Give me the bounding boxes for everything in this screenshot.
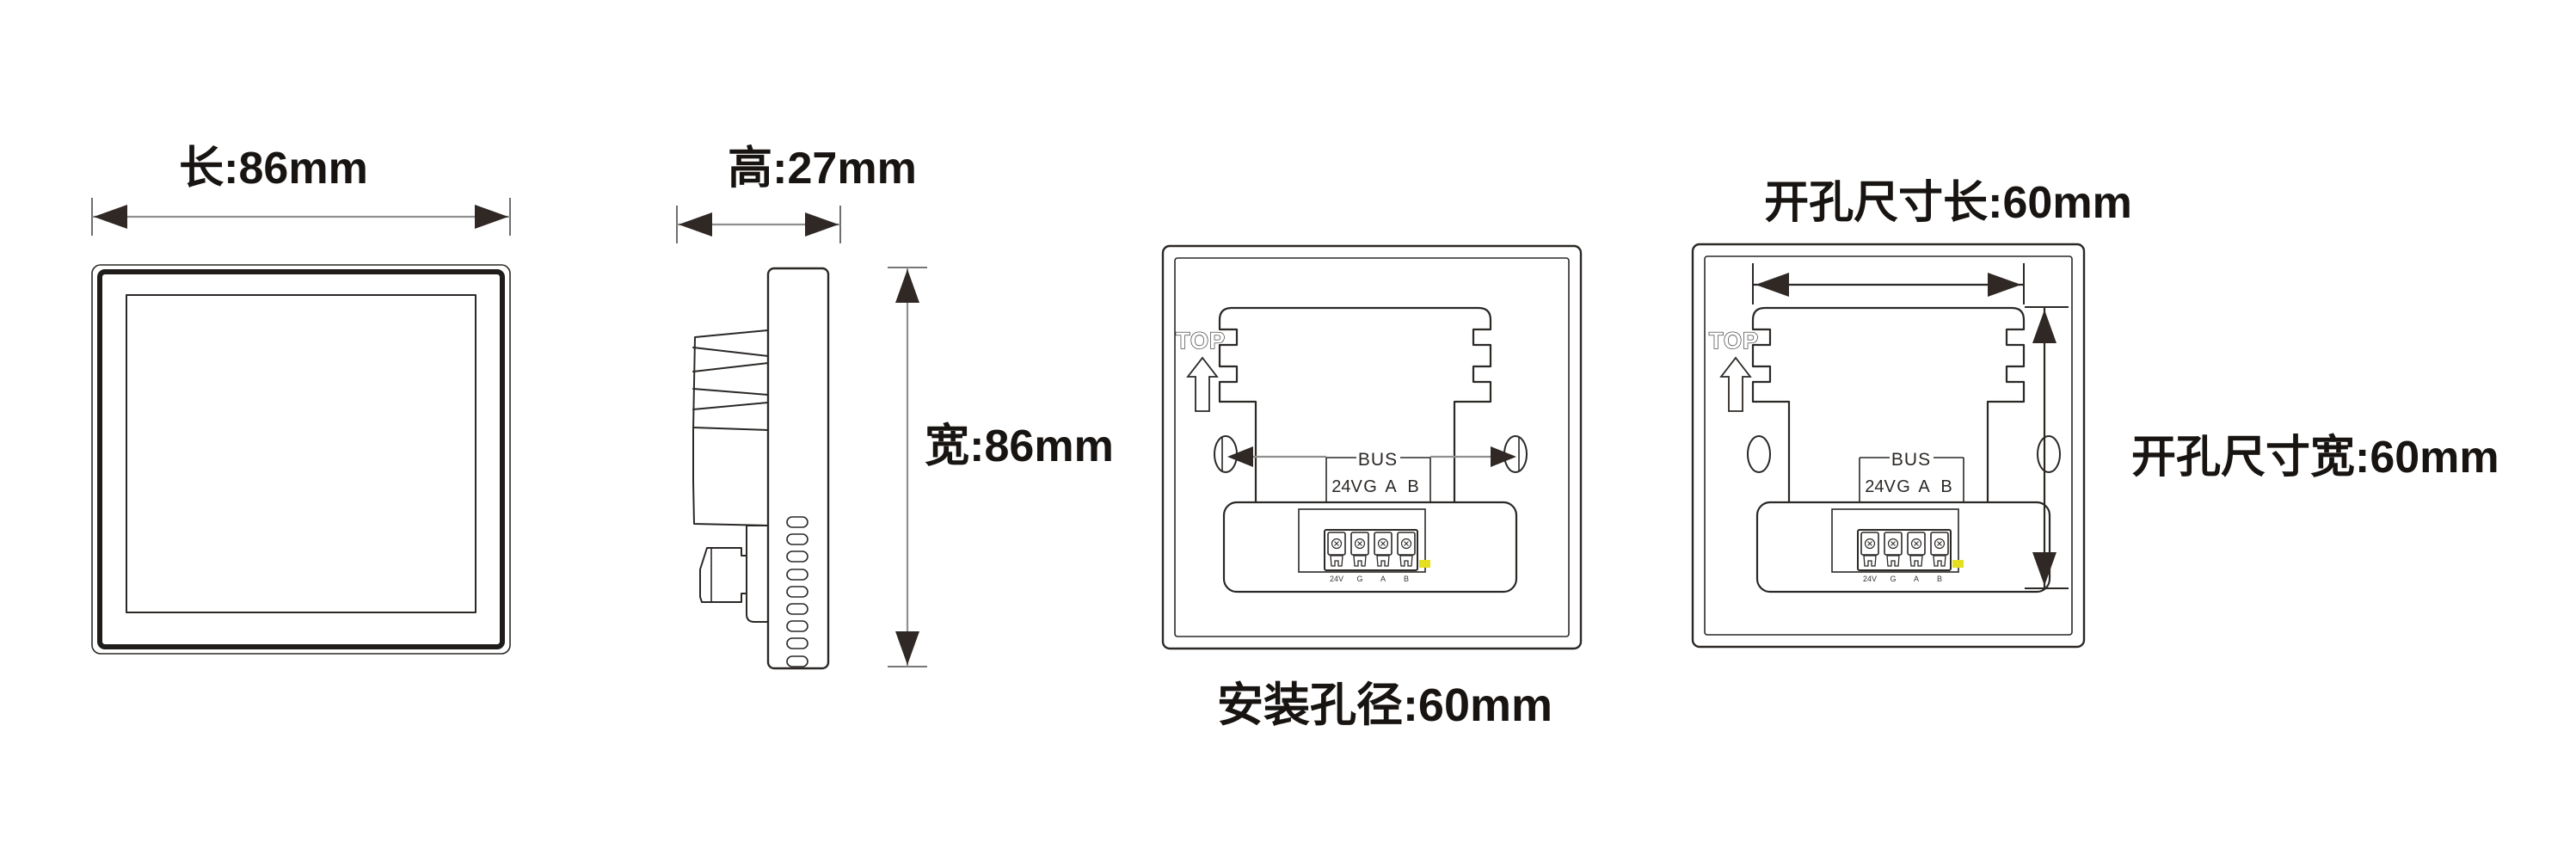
bus-pin-label: 24V — [1331, 477, 1362, 496]
terminal-pin-label: 24V — [1330, 575, 1343, 583]
mounting-hole-left — [1214, 436, 1237, 472]
bus-pin-label: B — [1407, 477, 1418, 496]
terminal-pin-label: A — [1914, 575, 1919, 583]
bus-pin-label: B — [1940, 477, 1952, 496]
length-dimension-label: 长:86mm — [179, 144, 368, 194]
cutout-width-label: 开孔尺寸宽:60mm — [2131, 433, 2499, 483]
side-view: 高:27mm — [677, 144, 1114, 668]
length-dimension: 长:86mm — [92, 144, 510, 236]
dim-arrow-left-icon — [679, 212, 712, 237]
bus-pin-label: 24V — [1865, 477, 1896, 496]
mounting-hole-left — [1748, 436, 1770, 472]
side-panel-slab — [768, 268, 828, 668]
terminal-cell — [1908, 532, 1925, 566]
dim-arrow-right-icon — [805, 212, 839, 237]
dimension-drawing-sheet: 长:86mm 高:27mm — [0, 0, 2576, 861]
front-panel-screen — [126, 295, 476, 612]
bus-label: BUS — [1358, 450, 1398, 470]
terminal-pin-label: 24V — [1863, 575, 1877, 583]
dim-arrow-down-icon — [895, 631, 919, 665]
dim-arrow-left-icon — [94, 205, 127, 229]
terminal-cell — [1931, 532, 1948, 566]
width-dimension: 宽:86mm — [888, 268, 1114, 667]
terminal-cell — [1861, 532, 1878, 566]
terminal-cell — [1351, 532, 1368, 566]
terminal-pin-label: G — [1356, 575, 1362, 583]
height-dimension-label: 高:27mm — [728, 144, 917, 194]
mounting-hole-right — [2038, 436, 2060, 472]
bus-label: BUS — [1891, 450, 1931, 470]
back-view-cutout: TOP BUS 24V G A B 24V G A B 开孔尺寸长:6 — [1693, 178, 2499, 647]
drawing-canvas: 长:86mm 高:27mm — [0, 0, 2576, 861]
dim-arrow-up-icon — [895, 269, 919, 303]
side-spring-clamp — [693, 330, 768, 526]
front-view: 长:86mm — [92, 144, 510, 654]
cutout-width-dimension: 开孔尺寸宽:60mm — [2025, 307, 2499, 588]
terminal-cell — [1374, 532, 1392, 566]
back-view-mount: TOP BUS 24V G A B — [1163, 246, 1581, 731]
top-marker-label: TOP — [1709, 328, 1759, 354]
led-indicator — [1952, 560, 1964, 568]
terminal-cell — [1398, 532, 1415, 566]
bus-pin-label: A — [1385, 477, 1397, 496]
terminal-pin-label: B — [1937, 575, 1942, 583]
side-bracket — [747, 526, 768, 622]
bus-pin-label: G — [1897, 477, 1910, 496]
top-marker-label: TOP — [1176, 328, 1226, 354]
terminal-pin-label: G — [1890, 575, 1896, 583]
side-terminal-plug — [700, 548, 747, 602]
dim-arrow-right-icon — [475, 205, 508, 229]
terminal-pin-label: B — [1404, 575, 1409, 583]
led-indicator — [1419, 560, 1430, 568]
terminal-cell — [1328, 532, 1345, 566]
terminal-cell — [1884, 532, 1902, 566]
bus-pin-label: G — [1363, 477, 1377, 496]
bus-pin-label: A — [1918, 477, 1930, 496]
height-dimension: 高:27mm — [677, 144, 917, 243]
cutout-length-label: 开孔尺寸长:60mm — [1764, 178, 2132, 228]
mount-hole-dimension-label: 安装孔径:60mm — [1217, 680, 1552, 731]
width-dimension-label: 宽:86mm — [925, 421, 1114, 471]
terminal-pin-label: A — [1380, 575, 1386, 583]
terminal-block: 24V G A B — [1832, 509, 1964, 583]
terminal-block: 24V G A B — [1299, 509, 1430, 583]
